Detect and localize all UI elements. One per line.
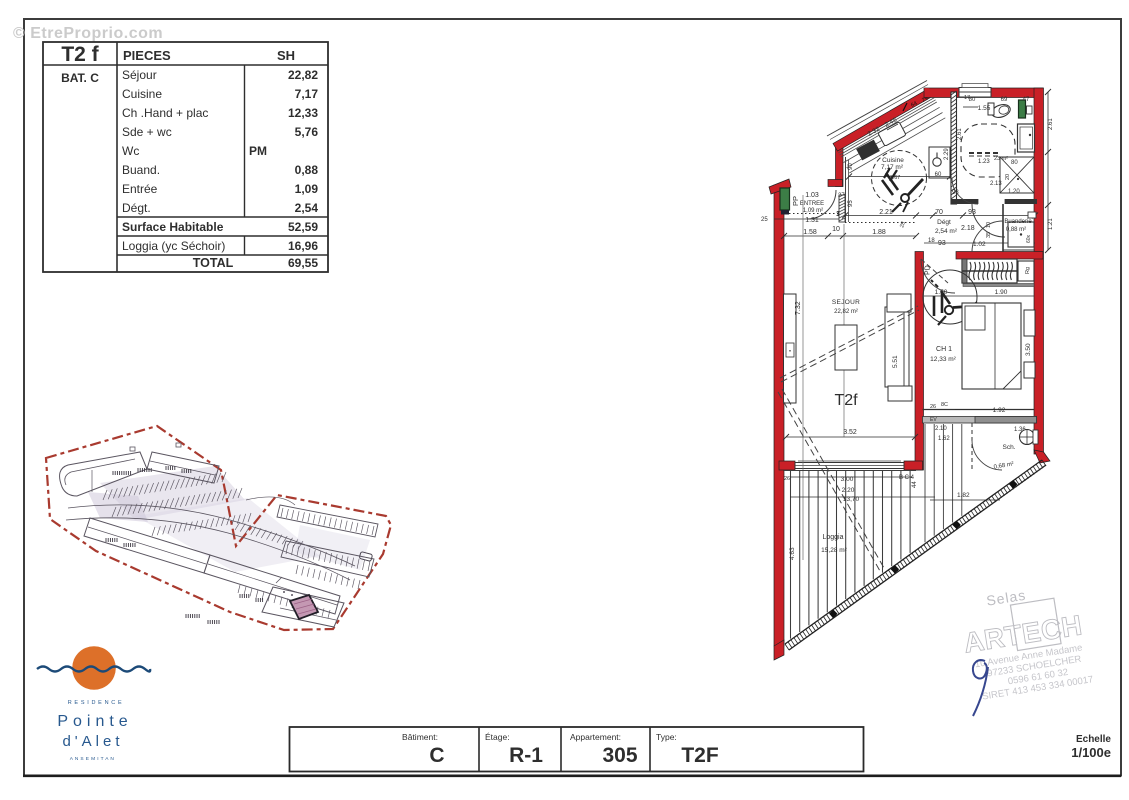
svg-text:PIECES: PIECES [123,48,171,63]
svg-text:23 m²: 23 m² [994,156,1008,162]
svg-text:60: 60 [935,172,942,178]
svg-text:T2F: T2F [681,744,719,767]
svg-text:PP: PP [791,196,800,206]
svg-text:44: 44 [912,481,918,488]
svg-text:T2 f: T2 f [61,43,99,66]
svg-text:d'Alet: d'Alet [62,733,123,750]
svg-text:22,82 m²: 22,82 m² [834,309,858,315]
svg-text:2,54: 2,54 [295,201,319,215]
svg-text:69,55: 69,55 [288,256,318,270]
svg-text:Cuisine: Cuisine [882,157,904,164]
svg-text:69: 69 [1001,97,1008,103]
svg-text:1.03: 1.03 [805,192,819,199]
svg-text:95: 95 [848,200,854,207]
svg-text:1.55: 1.55 [978,105,991,112]
svg-text:1.90: 1.90 [995,289,1008,296]
svg-text:1.02: 1.02 [973,241,986,248]
svg-text:C: C [429,744,444,767]
svg-text:Buand.: Buand. [122,163,160,177]
svg-text:3.00: 3.00 [841,476,854,483]
svg-text:SH: SH [277,48,295,63]
svg-text:1.23: 1.23 [978,159,990,165]
svg-text:3.50: 3.50 [1025,343,1032,356]
svg-text:Rg: Rg [1025,267,1031,274]
svg-text:80: 80 [1011,160,1018,166]
svg-text:8C: 8C [941,402,948,408]
svg-text:2,54 m²: 2,54 m² [935,228,958,235]
svg-text:1.20: 1.20 [1008,189,1020,195]
svg-text:1.62: 1.62 [938,436,950,442]
svg-text:1.21: 1.21 [1048,218,1054,230]
svg-text:12,33: 12,33 [288,106,318,120]
svg-text:3.52: 3.52 [843,429,857,436]
svg-text:7.32: 7.32 [795,301,802,315]
svg-text:93: 93 [968,209,976,216]
svg-text:PM: PM [249,144,267,158]
svg-text:60x: 60x [1026,234,1032,243]
svg-text:ENTREE: ENTREE [800,201,824,207]
svg-text:Sch.: Sch. [1002,444,1015,451]
svg-text:1.58: 1.58 [803,229,817,236]
svg-text:Sde + wc: Sde + wc [122,125,172,139]
svg-text:47: 47 [1023,97,1030,103]
svg-text:Entrée: Entrée [122,182,158,196]
svg-text:1.67: 1.67 [890,175,901,181]
svg-text:Wc: Wc [122,144,139,158]
svg-text:Étage:: Étage: [485,732,510,742]
svg-text:12,33 m²: 12,33 m² [930,356,956,363]
svg-text:2.13: 2.13 [990,181,1002,187]
svg-text:T2f: T2f [834,392,858,409]
svg-text:Loggia (yc Séchoir): Loggia (yc Séchoir) [122,239,225,253]
svg-text:305: 305 [602,744,637,767]
svg-text:© EtreProprio.com: © EtreProprio.com [13,25,163,42]
svg-text:Séjour: Séjour [122,68,157,82]
svg-text:Dégt: Dégt [937,219,951,226]
svg-text:4.63: 4.63 [789,547,796,560]
svg-text:Loggia: Loggia [822,534,843,541]
svg-text:2.18: 2.18 [961,225,975,232]
svg-text:10: 10 [832,226,840,233]
svg-text:2.20: 2.20 [842,487,855,494]
svg-text:52,59: 52,59 [288,220,318,234]
svg-text:Bâtiment:: Bâtiment: [402,732,438,742]
svg-text:Surface Habitable: Surface Habitable [122,220,224,234]
svg-text:2.21: 2.21 [879,209,893,216]
svg-text:SEJOUR: SEJOUR [832,299,860,306]
svg-text:Ch .Hand + plac: Ch .Hand + plac [122,106,208,120]
svg-text:7,17: 7,17 [295,87,319,101]
svg-text:1.88: 1.88 [872,229,886,236]
svg-text:TOTAL: TOTAL [193,256,234,270]
svg-text:1.82: 1.82 [957,492,970,499]
svg-text:Echelle: Echelle [1076,734,1111,745]
svg-text:26: 26 [784,476,790,482]
svg-text:B C 4: B C 4 [899,475,915,481]
svg-text:25: 25 [761,217,768,223]
svg-text:93: 93 [938,240,946,247]
svg-text:BAT. C: BAT. C [61,71,99,85]
svg-text:Type:: Type: [656,732,677,742]
svg-text:2.29: 2.29 [944,148,950,160]
svg-text:70: 70 [935,209,943,216]
svg-text:15,28 m²: 15,28 m² [821,547,847,554]
svg-text:Dégt.: Dégt. [122,201,151,215]
svg-text:16,96: 16,96 [288,239,318,253]
svg-text:1.50: 1.50 [935,289,948,296]
svg-text:1/100e: 1/100e [1071,745,1111,760]
svg-text:CH 1: CH 1 [936,346,952,353]
svg-text:Cuisine: Cuisine [122,87,162,101]
svg-text:2.10: 2.10 [935,426,947,432]
svg-text:Appartement:: Appartement: [570,732,621,742]
svg-text:7,17 m²: 7,17 m² [881,164,904,171]
svg-text:5,76: 5,76 [295,125,319,139]
svg-text:0,88 m²: 0,88 m² [1006,227,1026,233]
svg-text:EV: EV [930,417,937,423]
svg-text:2.61: 2.61 [1048,118,1054,130]
svg-text:22,82: 22,82 [288,68,318,82]
svg-text:Pointe: Pointe [57,713,132,730]
svg-text:A N S E M I T A N: A N S E M I T A N [70,756,115,762]
svg-text:R E S I D E N C E: R E S I D E N C E [68,700,123,706]
svg-text:PD: PD [925,265,932,275]
svg-text:1.92: 1.92 [993,407,1006,414]
svg-text:1.31: 1.31 [805,217,819,224]
svg-text:35: 35 [986,232,992,238]
svg-text:20: 20 [1005,174,1011,180]
svg-text:0,88: 0,88 [295,163,319,177]
svg-text:26: 26 [930,404,936,410]
svg-text:2.61: 2.61 [957,128,963,140]
svg-text:1,09: 1,09 [295,182,319,196]
svg-text:93: 93 [952,190,959,196]
svg-text:80: 80 [969,97,976,103]
svg-text:R-1: R-1 [509,744,543,767]
svg-text:Buanderie: Buanderie [1004,219,1032,225]
svg-text:5.51: 5.51 [892,355,899,368]
